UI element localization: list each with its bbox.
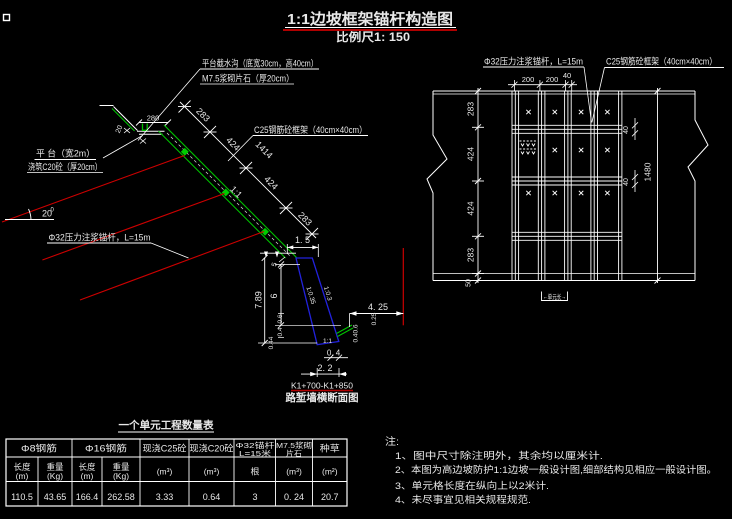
svg-text:0.4: 0.4	[353, 333, 360, 342]
svg-text:L=15米: L=15米	[239, 448, 272, 458]
svg-text:1、图中尺寸除注明外，其余均以厘米计.: 1、图中尺寸除注明外，其余均以厘米计.	[395, 450, 603, 462]
svg-text:(m³): (m³)	[157, 467, 173, 477]
svg-text:110.5: 110.5	[11, 492, 33, 502]
svg-text:0.6: 0.6	[277, 314, 284, 323]
svg-text:(Kg): (Kg)	[47, 471, 63, 481]
svg-text:200: 200	[546, 75, 559, 84]
svg-text:一个单元工程数量表: 一个单元工程数量表	[119, 419, 215, 432]
svg-text:40: 40	[623, 178, 630, 186]
svg-text:50: 50	[466, 279, 473, 287]
svg-text:4、未尽事宜见相关规程规范.: 4、未尽事宜见相关规程规范.	[395, 494, 531, 506]
svg-text:Φ32压力注浆锚杆，L=15m: Φ32压力注浆锚杆，L=15m	[49, 232, 151, 243]
svg-text:2. 2: 2. 2	[317, 363, 332, 373]
svg-text:0.4: 0.4	[277, 327, 284, 336]
svg-text:种草: 种草	[320, 443, 340, 454]
svg-text:Φ16钢筋: Φ16钢筋	[85, 443, 127, 454]
svg-text:424: 424	[466, 147, 476, 161]
svg-text:283: 283	[466, 102, 476, 116]
svg-text:40: 40	[623, 126, 630, 134]
svg-text:1:1边坡框架锚杆构造图: 1:1边坡框架锚杆构造图	[287, 10, 453, 28]
svg-text:(m): (m)	[16, 471, 29, 481]
svg-text:4. 25: 4. 25	[368, 302, 388, 312]
svg-text:0.64: 0.64	[203, 492, 221, 502]
svg-text:浇筑C20砼（厚20cm）: 浇筑C20砼（厚20cm）	[28, 161, 102, 172]
svg-text:现浇C20砼: 现浇C20砼	[190, 443, 234, 454]
svg-text:(m³): (m³)	[286, 467, 302, 477]
svg-text:片石: 片石	[286, 448, 303, 458]
svg-text:20.7: 20.7	[321, 492, 339, 502]
svg-text:0.25: 0.25	[371, 312, 378, 325]
svg-text:比例尺1: 150: 比例尺1: 150	[336, 30, 410, 44]
svg-text:262.58: 262.58	[107, 492, 135, 502]
svg-text:0. 24: 0. 24	[284, 492, 304, 502]
svg-text:(m³): (m³)	[204, 467, 220, 477]
svg-text:200: 200	[522, 75, 535, 84]
svg-text:3: 3	[252, 492, 257, 502]
svg-text:路堑墙横断面图: 路堑墙横断面图	[286, 391, 359, 404]
svg-text:1:1: 1:1	[323, 338, 332, 345]
svg-text:6: 6	[269, 293, 279, 298]
svg-text:0.44: 0.44	[268, 336, 275, 349]
svg-text:注:: 注:	[385, 435, 399, 448]
svg-text:C25钢筋砼框架（40cm×40cm）: C25钢筋砼框架（40cm×40cm）	[606, 56, 717, 67]
svg-text:Φ32压力注浆锚杆，L=15m: Φ32压力注浆锚杆，L=15m	[484, 56, 583, 67]
svg-text:M7.5浆砌片石（厚20cm）: M7.5浆砌片石（厚20cm）	[202, 73, 294, 84]
svg-text:1480: 1480	[643, 162, 653, 181]
svg-text:Φ8钢筋: Φ8钢筋	[21, 443, 57, 454]
svg-text:平台截水沟（底宽30cm，高40cm）: 平台截水沟（底宽30cm，高40cm）	[202, 58, 318, 69]
svg-text:0. 4: 0. 4	[327, 349, 341, 358]
svg-text:平 台（宽2m）: 平 台（宽2m）	[36, 148, 95, 159]
svg-text:3、单元格长度在纵向上以2米计.: 3、单元格长度在纵向上以2米计.	[395, 480, 549, 492]
svg-text:现浇C25砼: 现浇C25砼	[143, 443, 187, 454]
svg-text:根: 根	[251, 467, 261, 477]
svg-text:40: 40	[563, 71, 571, 80]
svg-text:166.4: 166.4	[76, 492, 99, 502]
svg-text:0.6: 0.6	[353, 324, 360, 333]
svg-text:7.89: 7.89	[254, 291, 264, 309]
svg-text:C25钢筋砼框架（40cm×40cm）: C25钢筋砼框架（40cm×40cm）	[254, 124, 367, 135]
svg-text:(m): (m)	[81, 471, 94, 481]
svg-text:43.65: 43.65	[44, 492, 67, 502]
svg-text:(Kg): (Kg)	[113, 471, 129, 481]
svg-text:1. 5: 1. 5	[295, 235, 310, 245]
svg-text:283: 283	[466, 248, 476, 262]
svg-text:3.33: 3.33	[156, 492, 174, 502]
svg-text:←单元长→: ←单元长→	[543, 292, 566, 301]
svg-text:(m²): (m²)	[322, 467, 338, 477]
svg-text:2、本图为高边坡防护1:1边坡一般设计图,细部结构见相应一般: 2、本图为高边坡防护1:1边坡一般设计图,细部结构见相应一般设计图。	[395, 464, 717, 476]
svg-text:424: 424	[466, 201, 476, 215]
svg-text:K1+700-K1+850: K1+700-K1+850	[291, 381, 353, 391]
